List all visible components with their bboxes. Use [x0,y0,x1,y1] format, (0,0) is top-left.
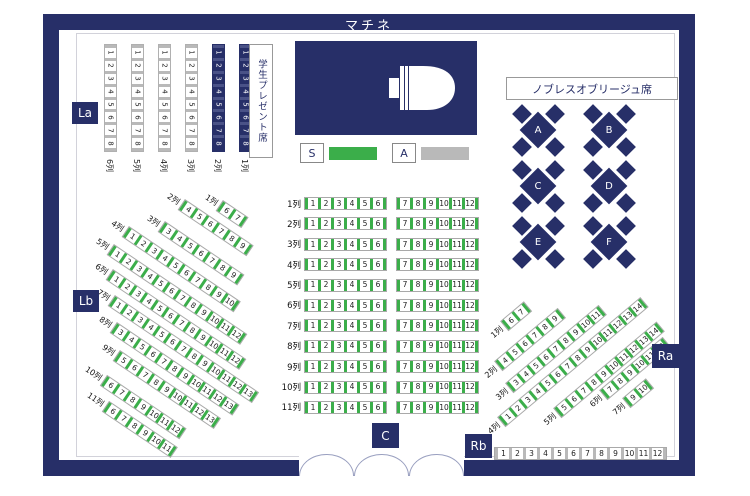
seat-9[interactable]: 9 [423,259,436,270]
noblesse-table-F-center[interactable]: F [591,224,628,261]
seat-5[interactable]: 5 [357,259,370,270]
seat-3[interactable]: 3 [186,71,197,84]
seat-6[interactable]: 6 [370,402,386,413]
seat-2[interactable]: 2 [318,218,331,229]
seat-group: 789101112 [396,299,479,312]
seat-3[interactable]: 3 [331,402,344,413]
row-label: 1列 [280,198,301,210]
seat-11[interactable]: 11 [449,320,462,331]
seat-9[interactable]: 9 [423,341,436,352]
seat-group: 123456 [304,279,387,292]
seat-11[interactable]: 11 [449,382,462,393]
seat-group: 789101112 [396,238,479,251]
seat-1[interactable]: 1 [305,300,318,311]
seat-5[interactable]: 5 [357,402,370,413]
seat-1[interactable]: 1 [213,45,224,58]
la-column: 123456782列 [211,44,225,171]
seat-6[interactable]: 6 [370,300,386,311]
row-label: 10列 [280,381,301,393]
seat-3[interactable]: 3 [331,218,344,229]
noblesse-table-letter: C [525,173,551,199]
seat-11[interactable]: 11 [449,218,462,229]
seat-3[interactable]: 3 [132,71,143,84]
seat-5[interactable]: 5 [186,97,197,110]
seat-group: 789101112 [396,381,479,394]
row-label: 7列 [280,320,301,332]
seat-10[interactable]: 10 [436,259,449,270]
seat-2[interactable]: 2 [318,300,331,311]
seat-8[interactable]: 8 [410,341,423,352]
seat-1[interactable]: 1 [305,382,318,393]
la-column: 123456785列 [130,44,144,171]
seat-6[interactable]: 6 [132,109,143,122]
noblesse-table-letter: B [596,117,622,143]
seat-4[interactable]: 4 [344,239,357,250]
seat-column: 12345678 [104,44,117,152]
noblesse-table-E-center[interactable]: E [520,224,557,261]
seat-group: 123456 [304,258,387,271]
seat-7[interactable]: 7 [213,122,224,135]
seat-2[interactable]: 2 [318,239,331,250]
seat-7[interactable]: 7 [397,341,410,352]
seat-11[interactable]: 11 [635,448,649,459]
seat-4[interactable]: 4 [344,280,357,291]
seat-3[interactable]: 3 [331,341,344,352]
seat-1[interactable]: 1 [305,239,318,250]
noblesse-table-C: C [511,159,565,213]
seat-9[interactable]: 9 [423,361,436,372]
center-row: 4列123456789101112 [280,258,479,271]
seat-7[interactable]: 7 [397,382,410,393]
seat-4[interactable]: 4 [344,320,357,331]
row-label: 2列 [280,218,301,230]
seat-8[interactable]: 8 [410,402,423,413]
seat-column: 12345678 [212,44,225,152]
column-label: 1列 [240,159,251,172]
seat-10[interactable]: 10 [436,280,449,291]
seat-5[interactable]: 5 [132,97,143,110]
seat-10[interactable]: 10 [436,402,449,413]
center-row: 9列123456789101112 [280,360,479,373]
seat-1[interactable]: 1 [305,361,318,372]
center-row: 11列123456789101112 [280,401,479,414]
seat-11[interactable]: 11 [449,361,462,372]
seat-5[interactable]: 5 [357,198,370,209]
seat-6[interactable]: 6 [370,280,386,291]
seat-1[interactable]: 1 [305,341,318,352]
row-label: 4列 [280,259,301,271]
seat-8[interactable]: 8 [132,135,143,151]
seat-8[interactable]: 8 [186,135,197,151]
seat-column: 12345678 [158,44,171,152]
seat-4[interactable]: 4 [344,259,357,270]
column-label: 5列 [132,159,143,172]
seat-10[interactable]: 10 [436,320,449,331]
seat-3[interactable]: 3 [331,259,344,270]
seat-3[interactable]: 3 [331,198,344,209]
seat-12[interactable]: 12 [462,341,478,352]
noblesse-table-A: A [511,103,565,157]
seat-12[interactable]: 12 [462,239,478,250]
seat-12[interactable]: 12 [462,361,478,372]
seat-8[interactable]: 8 [410,320,423,331]
seat-group: 789101112 [396,197,479,210]
page-title: マチネ [43,15,695,34]
seat-column: 12345678 [185,44,198,152]
seat-3[interactable]: 3 [331,280,344,291]
seat-group: 123456 [304,381,387,394]
seat-7[interactable]: 7 [159,122,170,135]
la-column: 123456783列 [184,44,198,171]
seat-group: 789101112 [396,401,479,414]
seat-3[interactable]: 3 [159,71,170,84]
seat-1[interactable]: 1 [305,402,318,413]
noblesse-table-C-center[interactable]: C [520,168,557,205]
noblesse-seat-block: ABCDEF [511,103,636,269]
row-label: 5列 [280,279,301,291]
seat-4[interactable]: 4 [132,84,143,97]
seat-1[interactable]: 1 [305,280,318,291]
seat-7[interactable]: 7 [397,218,410,229]
seat-5[interactable]: 5 [105,97,116,110]
center-row: 5列123456789101112 [280,279,479,292]
noblesse-table-letter: D [596,173,622,199]
seat-2[interactable]: 2 [159,58,170,71]
rb-seat-row: 123456789101112 [494,441,667,460]
seat-12[interactable]: 12 [462,300,478,311]
seat-6[interactable]: 6 [565,448,579,459]
seat-8[interactable]: 8 [410,239,423,250]
seat-10[interactable]: 10 [436,239,449,250]
seat-group: 123456 [304,401,387,414]
column-label: 6列 [105,159,116,172]
seat-9[interactable]: 9 [423,239,436,250]
seat-4[interactable]: 4 [344,402,357,413]
noblesse-table-letter: E [525,229,551,255]
lb-area-tag: Lb [73,290,99,312]
seat-group: 789101112 [396,279,479,292]
center-row: 6列123456789101112 [280,299,479,312]
center-row: 3列123456789101112 [280,238,479,251]
seat-1[interactable]: 1 [495,448,509,459]
ra-area-tag: Ra [652,344,679,368]
door-leaf [299,454,327,476]
seat-6[interactable]: 6 [370,361,386,372]
center-row: 1列123456789101112 [280,197,479,210]
seat-7[interactable]: 7 [397,320,410,331]
seat-4[interactable]: 4 [344,218,357,229]
seat-4[interactable]: 4 [344,382,357,393]
legend-a-label: A [392,143,416,163]
seat-group: 123456 [304,238,387,251]
seat-9[interactable]: 9 [423,198,436,209]
seat-6[interactable]: 6 [370,198,386,209]
seat-8[interactable]: 8 [159,135,170,151]
row-label: 3列 [280,238,301,250]
seat-6[interactable]: 6 [186,109,197,122]
seat-9[interactable]: 9 [423,218,436,229]
seat-3[interactable]: 3 [331,300,344,311]
la-seat-block: 123456786列123456785列123456784列123456783列… [103,44,252,171]
seat-group: 789101112 [396,217,479,230]
la-column: 123456784列 [157,44,171,171]
seat-5[interactable]: 5 [357,382,370,393]
seat-group: 123456789101112 [494,447,667,460]
seat-6[interactable]: 6 [105,109,116,122]
seat-9[interactable]: 9 [423,300,436,311]
seat-12[interactable]: 12 [462,382,478,393]
seat-6[interactable]: 6 [159,109,170,122]
seat-7[interactable]: 7 [132,122,143,135]
seat-12[interactable]: 12 [462,402,478,413]
seat-2[interactable]: 2 [318,402,331,413]
seat-3[interactable]: 3 [331,382,344,393]
seat-group: 123456 [304,319,387,332]
seat-11[interactable]: 11 [449,239,462,250]
seat-7[interactable]: 7 [397,280,410,291]
center-row: 7列123456789101112 [280,319,479,332]
row-label: 11列 [280,401,301,413]
seat-4[interactable]: 4 [186,84,197,97]
seat-9[interactable]: 9 [423,402,436,413]
seat-6[interactable]: 6 [370,259,386,270]
seat-11[interactable]: 11 [449,341,462,352]
seat-3[interactable]: 3 [331,320,344,331]
door-leaf [382,454,410,476]
center-row: 2列123456789101112 [280,217,479,230]
seat-8[interactable]: 8 [105,135,116,151]
seat-group: 123456 [304,217,387,230]
seat-2[interactable]: 2 [186,58,197,71]
seat-5[interactable]: 5 [159,97,170,110]
seat-9[interactable]: 9 [423,280,436,291]
column-label: 3列 [186,159,197,172]
seat-5[interactable]: 5 [357,300,370,311]
seat-12[interactable]: 12 [462,280,478,291]
seat-column: 12345678 [131,44,144,152]
la-area-tag: La [72,102,98,124]
seat-1[interactable]: 1 [105,45,116,58]
legend-a-swatch [421,147,469,160]
seat-1[interactable]: 1 [159,45,170,58]
seat-8[interactable]: 8 [410,280,423,291]
seat-10[interactable]: 10 [436,300,449,311]
seat-1[interactable]: 1 [305,320,318,331]
seat-11[interactable]: 11 [449,402,462,413]
seat-2[interactable]: 2 [509,448,523,459]
seat-2[interactable]: 2 [132,58,143,71]
seat-2[interactable]: 2 [318,341,331,352]
c-area-tag: C [372,423,399,448]
seat-7[interactable]: 7 [397,361,410,372]
seat-2[interactable]: 2 [213,58,224,71]
seat-6[interactable]: 6 [370,382,386,393]
seat-5[interactable]: 5 [551,448,565,459]
row-label: 9列 [280,361,301,373]
column-label: 2列 [213,159,224,172]
noblesse-table-D-center[interactable]: D [591,168,628,205]
door-leaf [354,454,382,476]
legend-s-swatch [329,147,377,160]
seat-4[interactable]: 4 [344,300,357,311]
seat-group: 123456 [304,360,387,373]
entrance-doors [299,454,464,479]
seat-4[interactable]: 4 [213,84,224,97]
noblesse-table-E: E [511,215,565,269]
seat-6[interactable]: 6 [370,320,386,331]
seat-1[interactable]: 1 [305,259,318,270]
seat-8[interactable]: 8 [410,382,423,393]
seat-12[interactable]: 12 [649,448,666,459]
seat-12[interactable]: 12 [462,198,478,209]
stage [295,41,477,135]
seat-2[interactable]: 2 [318,320,331,331]
seat-1[interactable]: 1 [186,45,197,58]
seat-8[interactable]: 8 [593,448,607,459]
seat-8[interactable]: 8 [410,259,423,270]
seat-7[interactable]: 7 [397,239,410,250]
seat-6[interactable]: 6 [370,218,386,229]
seat-2[interactable]: 2 [318,382,331,393]
seat-9[interactable]: 9 [607,448,621,459]
seat-class-legend: S A [300,143,479,163]
seat-9[interactable]: 9 [423,320,436,331]
seat-7[interactable]: 7 [397,402,410,413]
seat-7[interactable]: 7 [579,448,593,459]
seat-6[interactable]: 6 [213,109,224,122]
door-leaf [327,454,355,476]
seat-5[interactable]: 5 [357,361,370,372]
seat-3[interactable]: 3 [213,71,224,84]
door-leaf [409,454,437,476]
seat-10[interactable]: 10 [436,382,449,393]
rb-area-tag: Rb [465,434,492,458]
seat-5[interactable]: 5 [357,320,370,331]
seat-group: 789101112 [396,319,479,332]
seat-5[interactable]: 5 [357,341,370,352]
seat-group: 123456 [304,340,387,353]
seat-6[interactable]: 6 [370,239,386,250]
seat-8[interactable]: 8 [410,218,423,229]
seat-11[interactable]: 11 [449,198,462,209]
seat-group: 123456 [304,197,387,210]
seat-group: 123456 [304,299,387,312]
seat-group: 789101112 [396,258,479,271]
noblesse-table-letter: A [525,117,551,143]
seat-1[interactable]: 1 [132,45,143,58]
seat-3[interactable]: 3 [331,239,344,250]
seat-group: 789101112 [396,340,479,353]
seat-2[interactable]: 2 [318,259,331,270]
noblesse-table-B-center[interactable]: B [591,112,628,149]
seat-7[interactable]: 7 [397,300,410,311]
seat-3[interactable]: 3 [105,71,116,84]
noblesse-table-F: F [582,215,636,269]
noblesse-table-letter: F [596,229,622,255]
seat-11[interactable]: 11 [449,259,462,270]
center-row: 10列123456789101112 [280,381,479,394]
row-label: 6列 [280,299,301,311]
seat-5[interactable]: 5 [357,280,370,291]
column-label: 4列 [159,159,170,172]
seat-10[interactable]: 10 [621,448,635,459]
seat-10[interactable]: 10 [436,218,449,229]
seat-10[interactable]: 10 [436,361,449,372]
seat-2[interactable]: 2 [318,280,331,291]
noblesse-table-D: D [582,159,636,213]
seat-3[interactable]: 3 [523,448,537,459]
seat-11[interactable]: 11 [449,280,462,291]
seat-1[interactable]: 1 [305,198,318,209]
la-column: 123456786列 [103,44,117,171]
seat-2[interactable]: 2 [318,361,331,372]
legend-s-label: S [300,143,324,163]
seat-5[interactable]: 5 [357,218,370,229]
seat-5[interactable]: 5 [357,239,370,250]
student-present-seats-label: 学生プレゼント席 [249,44,273,158]
seat-4[interactable]: 4 [105,84,116,97]
seat-8[interactable]: 8 [213,135,224,151]
row-label: 8列 [280,340,301,352]
seating-chart: マチネ 123456786列123456785列123456784列123456… [0,0,750,496]
seat-4[interactable]: 4 [159,84,170,97]
seat-1[interactable]: 1 [305,218,318,229]
noblesse-table-B: B [582,103,636,157]
seat-7[interactable]: 7 [397,198,410,209]
seat-12[interactable]: 12 [462,320,478,331]
noblesse-table-A-center[interactable]: A [520,112,557,149]
noblesse-oblige-label: ノブレスオブリージュ席 [506,77,678,100]
seat-5[interactable]: 5 [213,97,224,110]
seat-2[interactable]: 2 [105,58,116,71]
seat-3[interactable]: 3 [331,361,344,372]
seat-11[interactable]: 11 [449,300,462,311]
seat-4[interactable]: 4 [344,361,357,372]
seat-12[interactable]: 12 [462,259,478,270]
seat-7[interactable]: 7 [397,259,410,270]
seat-8[interactable]: 8 [410,361,423,372]
seat-10[interactable]: 10 [436,198,449,209]
seat-8[interactable]: 8 [410,300,423,311]
seat-8[interactable]: 8 [410,198,423,209]
seat-10[interactable]: 10 [436,341,449,352]
seat-4[interactable]: 4 [537,448,551,459]
seat-group: 789101112 [396,360,479,373]
seat-9[interactable]: 9 [423,382,436,393]
center-seat-block: 1列1234567891011122列1234567891011123列1234… [280,197,479,421]
seat-6[interactable]: 6 [370,341,386,352]
center-row: 8列123456789101112 [280,340,479,353]
seat-2[interactable]: 2 [318,198,331,209]
door-leaf [437,454,465,476]
seat-7[interactable]: 7 [105,122,116,135]
seat-7[interactable]: 7 [186,122,197,135]
seat-4[interactable]: 4 [344,341,357,352]
seat-4[interactable]: 4 [344,198,357,209]
seat-12[interactable]: 12 [462,218,478,229]
grand-piano-icon [389,61,461,115]
